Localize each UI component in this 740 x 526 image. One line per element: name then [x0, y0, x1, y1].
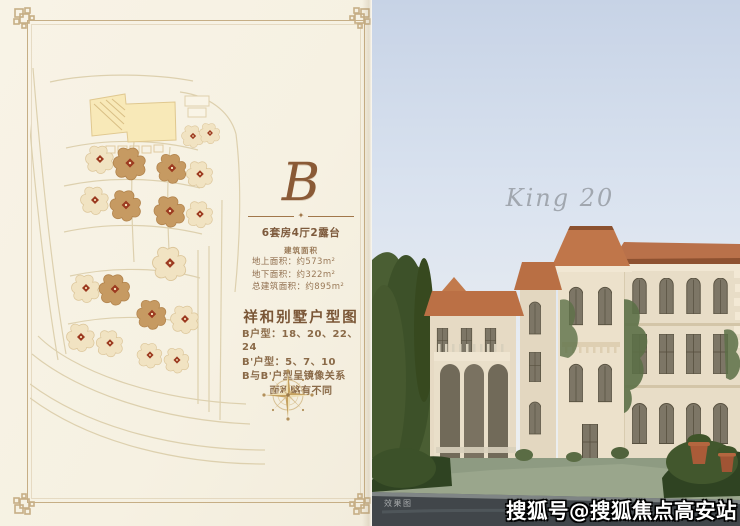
site-plan-map [30, 52, 265, 472]
render-disclaimer-label: 效果图 [384, 498, 413, 509]
area-rows: 地上面积：约573m²地下面积：约322m²总建筑面积：约895m² [242, 256, 360, 294]
villa-rendering-photo: King 20 效果图 搜狐号@搜狐焦点高安站 [372, 0, 740, 526]
villa-footprint [164, 348, 189, 373]
villa-footprint [199, 123, 219, 143]
compass-rose-icon [261, 368, 315, 426]
villa-footprint [67, 324, 95, 351]
unit-info-panel: B ✦ 6套房4厅2露台 建筑面积 地上面积：约573m²地下面积：约322m²… [242, 156, 360, 398]
unit-type-text: 6套房4厅2露台 [242, 225, 360, 240]
mansion-central-tower [550, 226, 632, 470]
plan-note: B户型：18、20、22、24 [242, 328, 360, 355]
mansion-left-wing [424, 277, 524, 473]
king20-script-title: King 20 [490, 184, 630, 212]
villa-footprint [137, 343, 162, 368]
page-fold-shadow [362, 0, 372, 526]
corner-ornament-icon [13, 485, 43, 515]
villa-footprint [154, 197, 184, 227]
mansion-right-wing [610, 242, 740, 470]
plan-heading: 祥和别墅户型图 [242, 306, 360, 327]
villa-footprint [182, 126, 204, 148]
villa-illustration [372, 0, 740, 526]
area-row: 总建筑面积：约895m² [242, 281, 360, 294]
monogram-b: B [242, 156, 360, 210]
siteplan-page: B ✦ 6套房4厅2露台 建筑面积 地上面积：约573m²地下面积：约322m²… [0, 0, 372, 526]
villa-footprint [81, 187, 109, 214]
villa-footprint [96, 331, 122, 357]
villa-footprint [186, 202, 212, 228]
area-row: 地下面积：约322m² [242, 269, 360, 282]
villa-footprint [137, 300, 166, 329]
villa-footprint [99, 275, 129, 305]
divider-diamond-icon: ✦ [294, 212, 309, 220]
area-row: 地上面积：约573m² [242, 256, 360, 269]
clubhouse-footprint [90, 94, 176, 153]
brochure-spread: B ✦ 6套房4厅2露台 建筑面积 地上面积：约573m²地下面积：约322m²… [0, 0, 740, 526]
villa-footprint [72, 275, 100, 302]
mansion-mid-tower [514, 262, 562, 470]
villa-footprints [67, 123, 220, 373]
villa-footprint [186, 162, 212, 188]
villa-footprint [113, 148, 145, 180]
plan-note: B'户型：5、7、10 [242, 356, 360, 370]
portico [428, 344, 516, 473]
villa-footprint [157, 154, 186, 183]
villa-footprint [153, 247, 186, 280]
annex-footprint [185, 96, 209, 117]
divider-ornament: ✦ [248, 212, 354, 220]
area-section-label: 建筑面积 [242, 245, 360, 256]
villa-footprint [110, 191, 140, 221]
villa-footprint [171, 306, 199, 333]
corner-ornament-icon [13, 7, 43, 37]
villa-footprint [86, 146, 114, 173]
sohu-watermark: 搜狐号@搜狐焦点高安站 [506, 494, 737, 524]
